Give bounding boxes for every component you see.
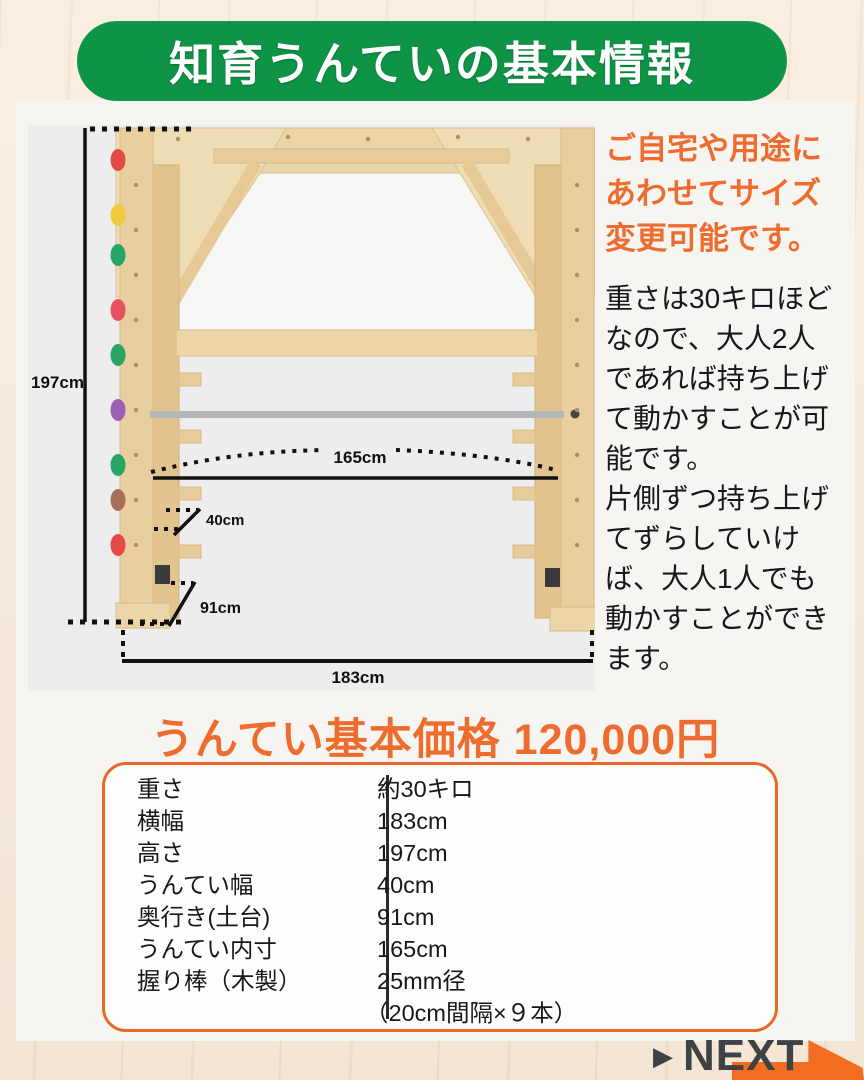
metal-bar — [150, 411, 564, 418]
spec-value: 183cm — [357, 805, 448, 837]
spec-row: 握り棒（木製）25mm径 — [105, 965, 775, 997]
climbing-hold — [111, 534, 126, 556]
climbing-hold — [111, 204, 126, 226]
body-line: であれば持ち上げ — [605, 359, 855, 399]
inner-span-label: 165cm — [334, 448, 387, 467]
spec-value: 約30キロ — [357, 773, 474, 805]
spec-label: 横幅 — [105, 805, 357, 837]
spec-label: 重さ — [105, 773, 357, 805]
spec-row-note: （20cm間隔×９本） — [105, 997, 775, 1029]
body-line: なので、大人2人 — [605, 319, 855, 359]
spec-row: 重さ約30キロ — [105, 773, 775, 805]
total-width-label: 183cm — [332, 668, 385, 687]
size-customizable-note: ご自宅や用途にあわせてサイズ変更可能です。 — [605, 126, 855, 261]
weight-description: 重さは30キロほどなので、大人2人であれば持ち上げて動かすことが可能です。片側ず… — [605, 279, 855, 679]
spec-row: 奥行き(土台)91cm — [105, 901, 775, 933]
body-line: 片側ずつ持ち上げ — [605, 479, 855, 519]
highlight-line: 変更可能です。 — [605, 216, 855, 261]
monkey-bars-illustration: 197cm 165cm 40cm 91cm 183cm — [28, 125, 595, 690]
info-card: 197cm 165cm 40cm 91cm 183cm ご自宅や用途にあわせてサ… — [16, 100, 855, 1041]
spec-row: うんてい内寸165cm — [105, 933, 775, 965]
spec-value: 91cm — [357, 901, 434, 933]
body-line: 重さは30キロほど — [605, 279, 855, 319]
spec-row: 高さ197cm — [105, 837, 775, 869]
climbing-holds — [111, 149, 126, 556]
base-depth-label: 91cm — [200, 600, 241, 617]
spec-label-empty — [105, 997, 357, 1029]
climbing-hold — [111, 299, 126, 321]
climbing-hold — [111, 344, 126, 366]
spec-table: 重さ約30キロ横幅183cm高さ197cmうんてい幅40cm奥行き(土台)91c… — [102, 762, 778, 1032]
climbing-hold — [111, 244, 126, 266]
highlight-line: ご自宅や用途に — [605, 126, 855, 171]
spec-label: 握り棒（木製） — [105, 965, 357, 997]
spec-value: 165cm — [357, 933, 448, 965]
page-title: 知育うんていの基本情報 — [169, 28, 695, 94]
next-label: NEXT — [683, 1032, 804, 1080]
body-line: てずらしていけ — [605, 519, 855, 559]
spec-row: うんてい幅40cm — [105, 869, 775, 901]
body-line: 能です。 — [605, 439, 855, 479]
height-label: 197cm — [31, 373, 84, 392]
spec-label: 高さ — [105, 837, 357, 869]
description-panel: ご自宅や用途にあわせてサイズ変更可能です。 重さは30キロほどなので、大人2人で… — [605, 126, 855, 679]
body-line: ます。 — [605, 639, 855, 679]
price-heading: うんてい基本価格 120,000円 — [16, 705, 855, 767]
body-line: ば、大人1人でも — [605, 559, 855, 599]
climbing-hold — [111, 399, 126, 421]
highlight-line: あわせてサイズ — [605, 171, 855, 216]
body-line: て動かすことが可 — [605, 399, 855, 439]
spec-value: 40cm — [357, 869, 434, 901]
spec-label: うんてい幅 — [105, 869, 357, 901]
spec-row: 横幅183cm — [105, 805, 775, 837]
spec-value: 197cm — [357, 837, 448, 869]
climbing-hold — [111, 489, 126, 511]
rung-width-label: 40cm — [206, 512, 244, 529]
product-diagram: 197cm 165cm 40cm 91cm 183cm — [28, 125, 595, 690]
climbing-hold — [111, 454, 126, 476]
next-button[interactable]: ▶ NEXT — [653, 1032, 804, 1080]
climbing-hold — [111, 149, 126, 171]
spec-value: 25mm径 — [357, 965, 466, 997]
spec-label: うんてい内寸 — [105, 933, 357, 965]
play-triangle-icon: ▶ — [653, 1032, 673, 1080]
title-banner: 知育うんていの基本情報 — [77, 21, 787, 101]
spec-rows: 重さ約30キロ横幅183cm高さ197cmうんてい幅40cm奥行き(土台)91c… — [105, 773, 775, 1029]
body-line: 動かすことができ — [605, 599, 855, 639]
spec-label: 奥行き(土台) — [105, 901, 357, 933]
spec-value-note: （20cm間隔×９本） — [357, 997, 577, 1029]
